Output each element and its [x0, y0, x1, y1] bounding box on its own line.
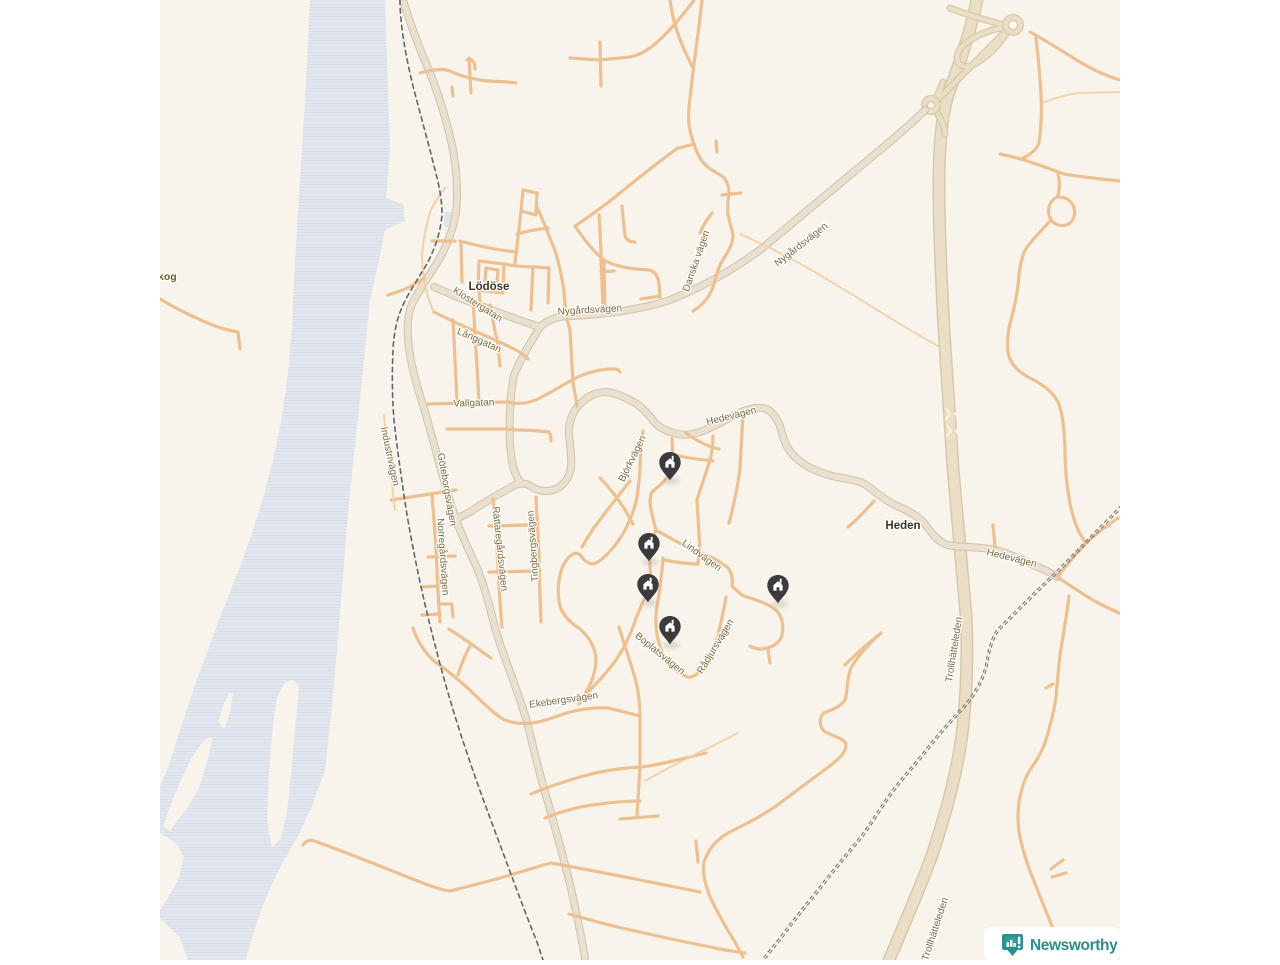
- svg-text:kog: kog: [158, 271, 177, 283]
- svg-text:Vallgatan: Vallgatan: [453, 397, 494, 409]
- svg-text:Heden: Heden: [885, 520, 920, 532]
- svg-text:Newsworthy: Newsworthy: [1030, 937, 1118, 954]
- svg-text:Lödöse: Lödöse: [469, 281, 510, 293]
